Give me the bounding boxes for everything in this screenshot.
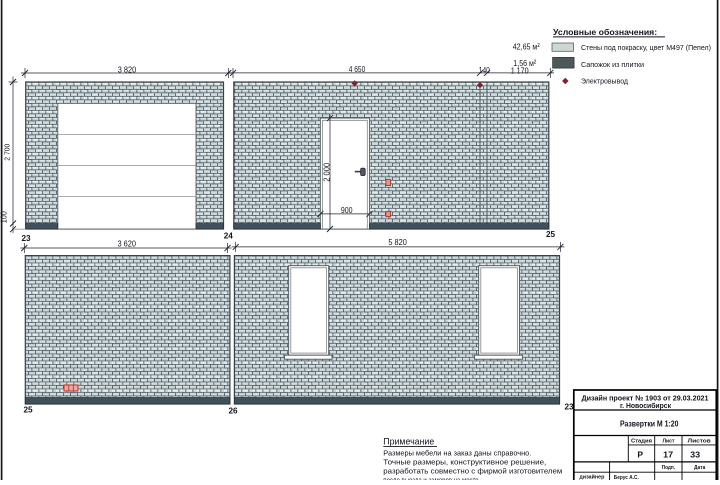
svg-text:Размеры мебели на заказ даны с: Размеры мебели на заказ даны справочно. [383,449,531,458]
svg-text:42,65 м²: 42,65 м² [513,41,540,51]
svg-text:100: 100 [0,211,8,224]
svg-text:23: 23 [564,402,574,411]
svg-text:Р: Р [637,449,643,459]
svg-text:разработать совместно с фирмой: разработать совместно с фирмой изготовит… [383,467,562,476]
svg-text:25: 25 [546,230,556,239]
svg-text:Электровывод: Электровывод [581,79,628,86]
svg-text:5 820: 5 820 [388,237,407,247]
svg-text:Примечание: Примечание [383,437,434,447]
svg-text:Точные размеры, конструктивное: Точные размеры, конструктивное решение, [383,458,546,467]
svg-text:Развертки М 1:20: Развертки М 1:20 [620,419,679,428]
svg-text:Стадия: Стадия [631,439,652,445]
svg-text:140: 140 [479,65,490,75]
svg-text:24: 24 [224,231,234,240]
svg-text:Берус А.С.: Берус А.С. [614,475,639,480]
svg-text:Сапожок из плитки: Сапожок из плитки [581,62,644,69]
svg-text:г. Новосибирск: г. Новосибирск [620,401,671,410]
svg-text:1,56 м²: 1,56 м² [513,58,536,68]
svg-text:4 650: 4 650 [349,64,366,74]
svg-text:2 700: 2 700 [2,144,11,161]
svg-text:после выезда и замеров на мест: после выезда и замеров на месте. [383,475,480,480]
svg-text:Лист: Лист [663,439,675,445]
svg-text:26: 26 [228,407,238,416]
svg-text:Подп.: Подп. [662,465,676,471]
svg-text:Листов: Листов [688,439,711,445]
svg-text:3 620: 3 620 [117,238,136,248]
svg-text:Условные обозначения:: Условные обозначения: [553,27,657,37]
svg-text:2 000: 2 000 [322,162,331,182]
svg-text:900: 900 [341,205,353,215]
svg-text:дизайнер: дизайнер [579,473,605,480]
svg-text:Стены под покраску, цвет М497: Стены под покраску, цвет М497 (Пепел) [581,45,711,52]
svg-text:33: 33 [690,449,700,459]
svg-text:Дата: Дата [694,465,706,471]
svg-text:25: 25 [23,406,33,415]
svg-text:17: 17 [663,449,673,459]
svg-text:23: 23 [21,234,31,243]
svg-text:3 820: 3 820 [118,64,137,74]
